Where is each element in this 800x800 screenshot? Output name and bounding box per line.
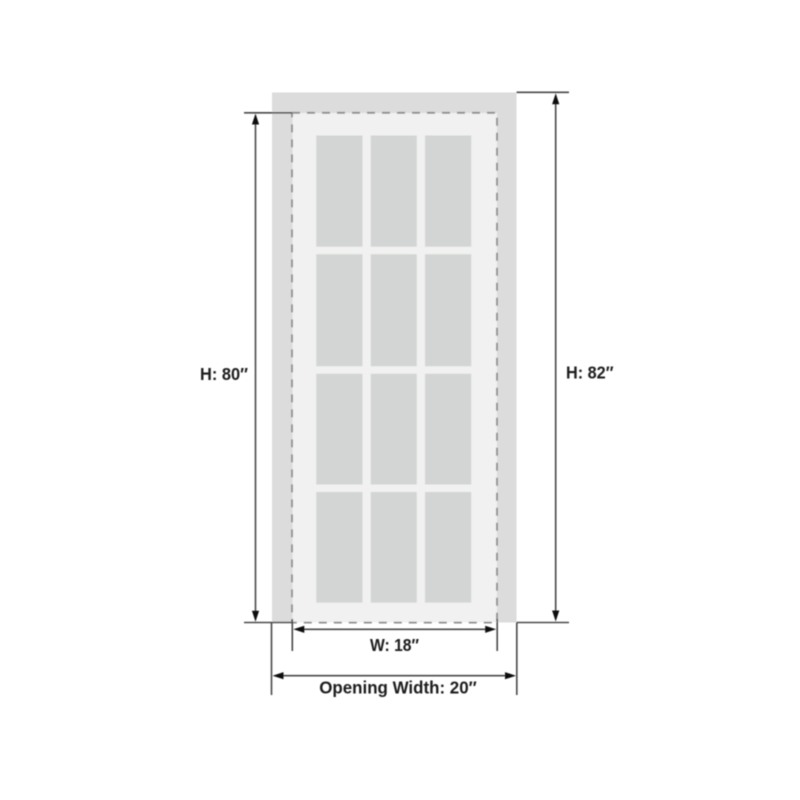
svg-text:H: 82″: H: 82″ [566,363,614,383]
svg-text:H: 80″: H: 80″ [200,364,249,384]
svg-text:Opening Width: 20″: Opening Width: 20″ [319,677,477,697]
svg-text:W: 18″: W: 18″ [370,635,420,655]
